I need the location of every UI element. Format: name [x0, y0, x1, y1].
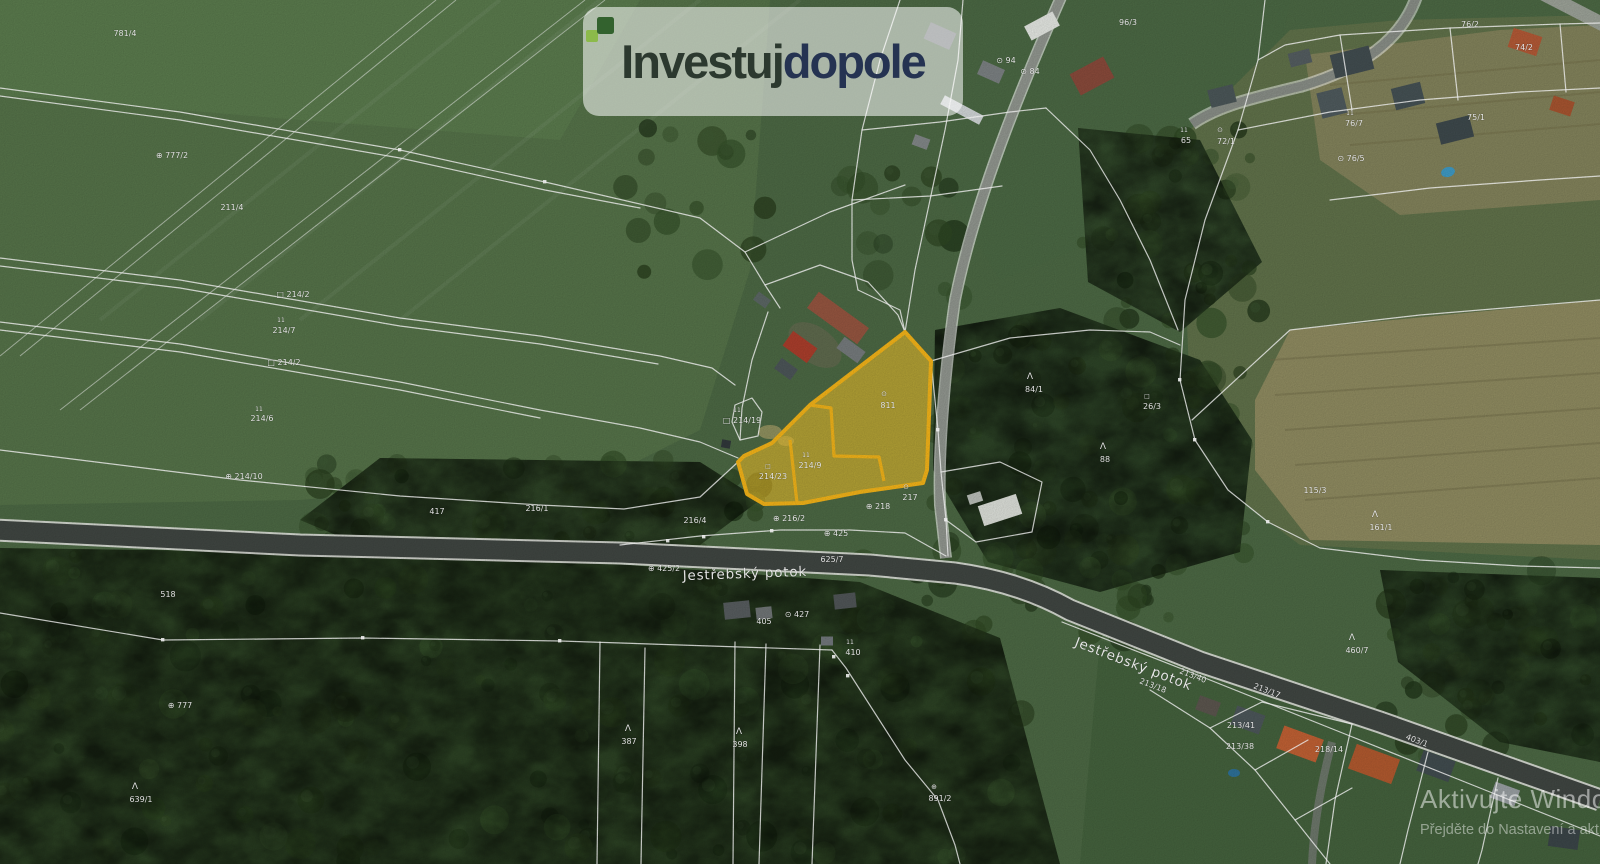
logo-text-investuj: Investuj: [621, 34, 783, 89]
logo-text-dopole: dopole: [783, 34, 925, 89]
investujdopole-logo: Investujdopole: [583, 7, 963, 116]
satellite-map-canvas: 781/4⊕ 777/2211/4□ 214/211214/7□ 214/211…: [0, 0, 1600, 864]
cadastral-satellite-map-image: 781/4⊕ 777/2211/4□ 214/211214/7□ 214/211…: [0, 0, 1600, 864]
growth-squares-icon: [583, 11, 619, 49]
grain-texture: [0, 0, 1600, 864]
